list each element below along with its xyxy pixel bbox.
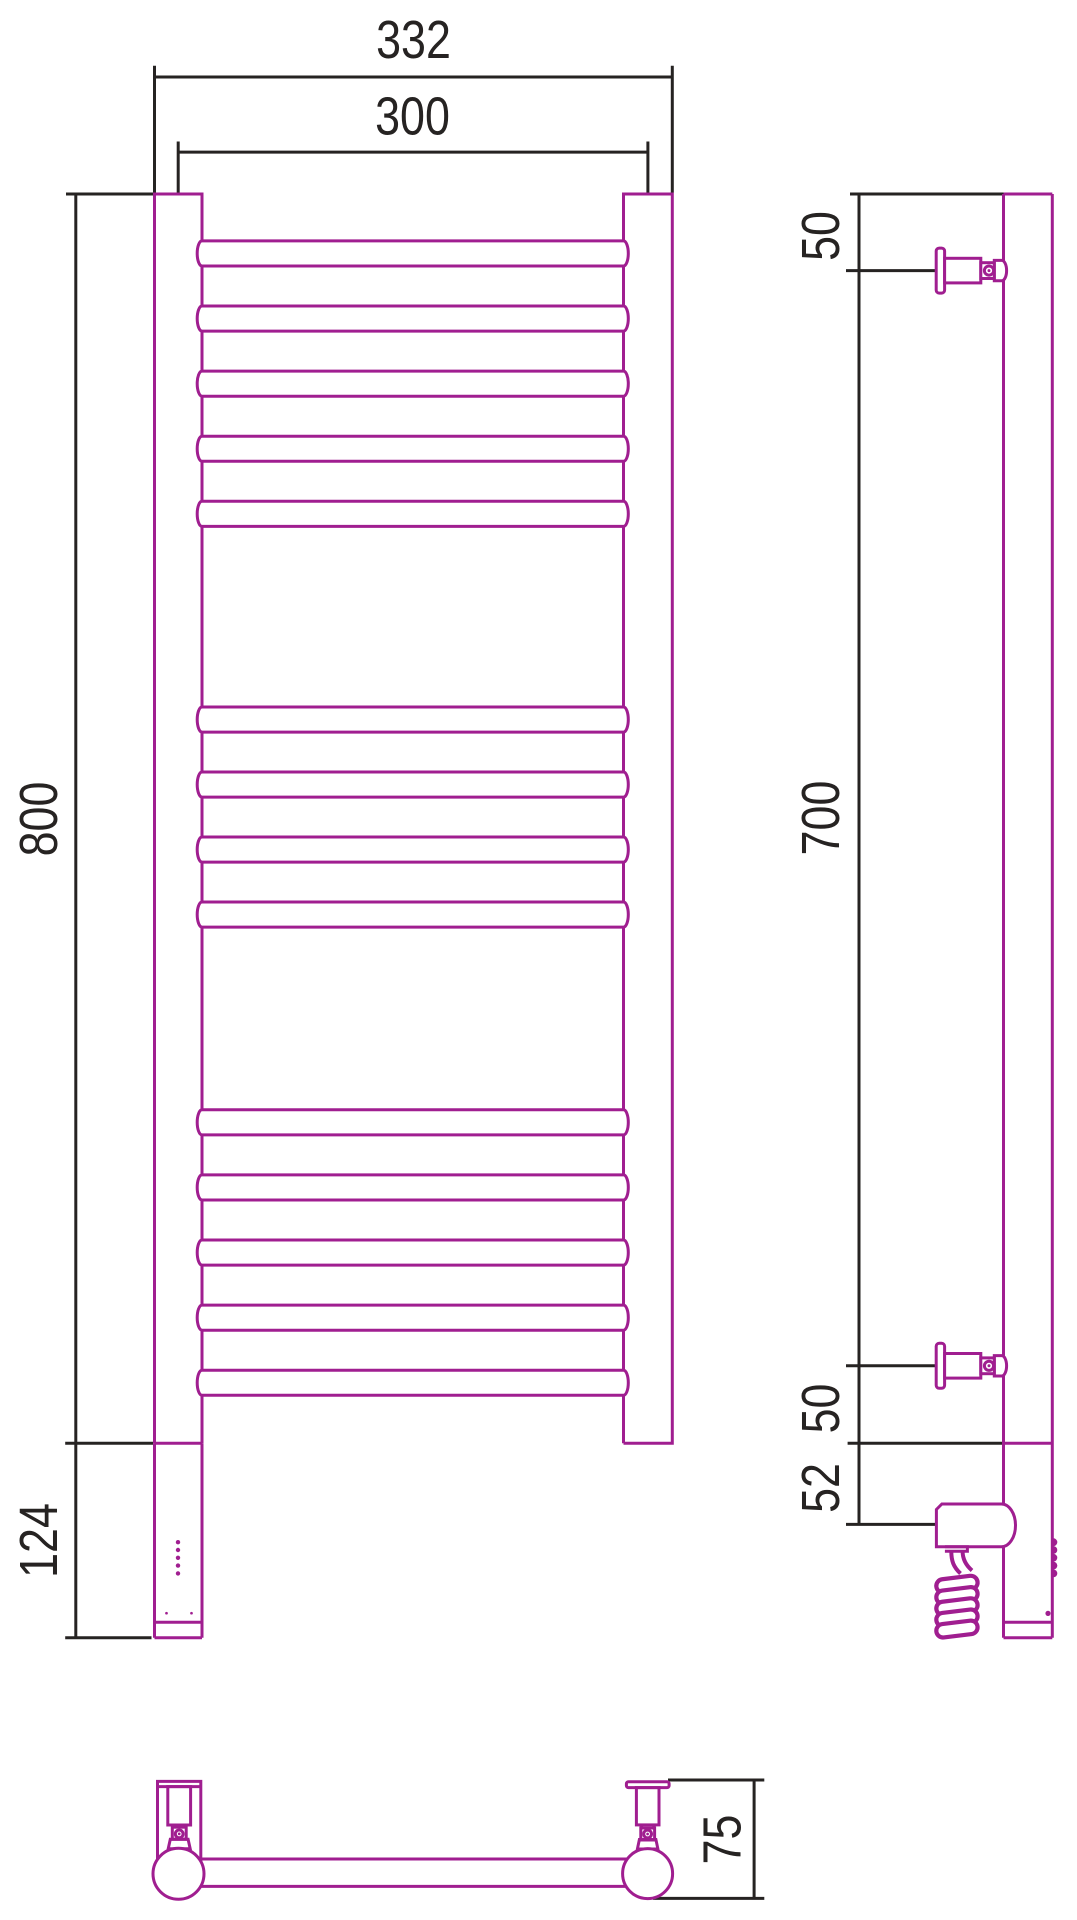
svg-text:124: 124: [8, 1503, 69, 1578]
svg-text:50: 50: [790, 211, 851, 261]
svg-text:700: 700: [790, 781, 851, 856]
svg-text:52: 52: [790, 1463, 851, 1513]
svg-text:75: 75: [691, 1815, 752, 1865]
svg-text:800: 800: [8, 782, 69, 857]
svg-text:300: 300: [375, 86, 450, 147]
svg-text:50: 50: [790, 1384, 851, 1434]
svg-text:332: 332: [376, 9, 451, 70]
